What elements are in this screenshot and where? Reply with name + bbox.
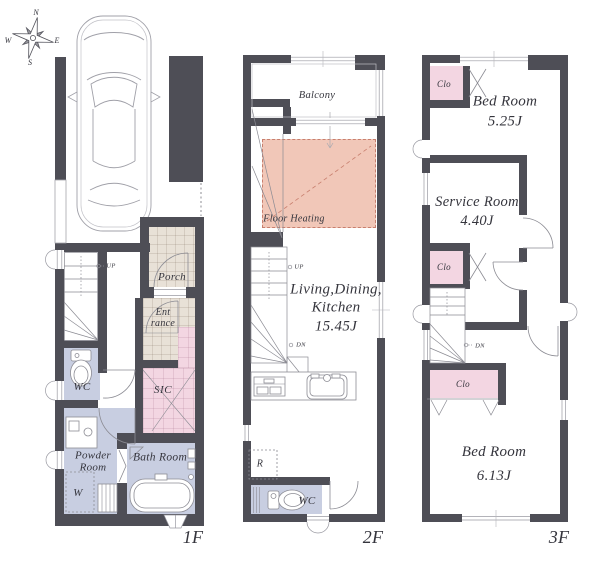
compass-s: S [28, 58, 32, 67]
label-entrance-line2: rance [151, 318, 175, 329]
label-floor-2f: 2F [363, 527, 384, 547]
label-service-name: Service Room [435, 193, 519, 212]
wc1-door-arc [103, 370, 135, 398]
balcony-door-arrow [327, 112, 333, 148]
shelf-icon [98, 484, 117, 512]
label-floor-1f: 1F [183, 527, 204, 547]
heating-diagonal [267, 146, 371, 221]
bath-fold-door [119, 450, 126, 482]
label-bedroom2-name: Bed Room [462, 440, 526, 464]
compass-w: W [5, 36, 13, 45]
bathtub-icon [130, 474, 194, 512]
label-powder-line1: Powder [75, 450, 111, 462]
bedroom2-door-arc [528, 326, 558, 356]
label-bedroom1-name: Bed Room [473, 93, 537, 113]
label-entrance: Ent rance [151, 307, 175, 329]
sink-icon [307, 374, 347, 399]
exterior-door-arc [307, 522, 329, 533]
compass-n: N [32, 8, 39, 17]
compass-icon: N E S W [5, 8, 60, 67]
compass-e: E [54, 36, 60, 45]
label-wc-2f: WC [298, 495, 315, 507]
label-bedroom2: Bed Room 6.13J [462, 440, 526, 488]
label-service-size: 4.40J [435, 212, 519, 231]
label-entrance-line1: Ent [151, 307, 175, 318]
car-icon [68, 16, 160, 231]
label-bedroom1: Bed Room 5.25J [473, 93, 537, 132]
stove-icon [254, 377, 285, 396]
label-ldk-line2: Kitchen [290, 299, 382, 317]
label-ldk-line3: 15.45J [290, 317, 382, 335]
hall-door-arc [493, 262, 523, 290]
label-floor-3f: 3F [549, 527, 570, 547]
wc2-door-arc [330, 481, 358, 509]
label-up-2f: UP [294, 263, 303, 270]
label-closet2: Clo [437, 262, 451, 272]
label-bedroom2-size: 6.13J [462, 464, 526, 488]
label-closet1: Clo [437, 79, 451, 89]
label-up-1f: UP [106, 262, 115, 269]
label-sic: SIC [154, 384, 172, 396]
label-wc-1f: WC [73, 381, 90, 393]
label-balcony: Balcony [299, 90, 336, 102]
label-powder-line2: Room [75, 462, 111, 474]
label-fridge: R [257, 458, 263, 469]
vanity-icon [66, 417, 97, 448]
floor1-fixtures [66, 350, 195, 512]
service-door-arc [523, 218, 553, 248]
closet2-fold-door [469, 253, 486, 281]
label-bath-room: Bath Room [133, 452, 187, 465]
label-ldk-line1: Living,Dining, [290, 281, 382, 299]
floorplan-canvas: N E S W [0, 0, 600, 569]
label-dn-2f: DN [296, 341, 306, 348]
label-powder-room: Powder Room [75, 450, 111, 475]
label-porch: Porch [158, 271, 186, 283]
label-floor-heating: Floor Heating [263, 213, 324, 224]
floor2-kitchen [251, 372, 356, 400]
closet3-hangers [427, 399, 499, 415]
label-dn-3f: DN [475, 342, 485, 349]
label-ldk: Living,Dining, Kitchen 15.45J [290, 281, 382, 336]
label-closet3: Clo [456, 379, 470, 389]
bath-counter [188, 449, 195, 458]
label-washer: W [73, 487, 82, 499]
sic-shelf-lines [143, 370, 195, 431]
label-bedroom1-size: 5.25J [473, 112, 537, 132]
label-service-room: Service Room 4.40J [435, 193, 519, 231]
